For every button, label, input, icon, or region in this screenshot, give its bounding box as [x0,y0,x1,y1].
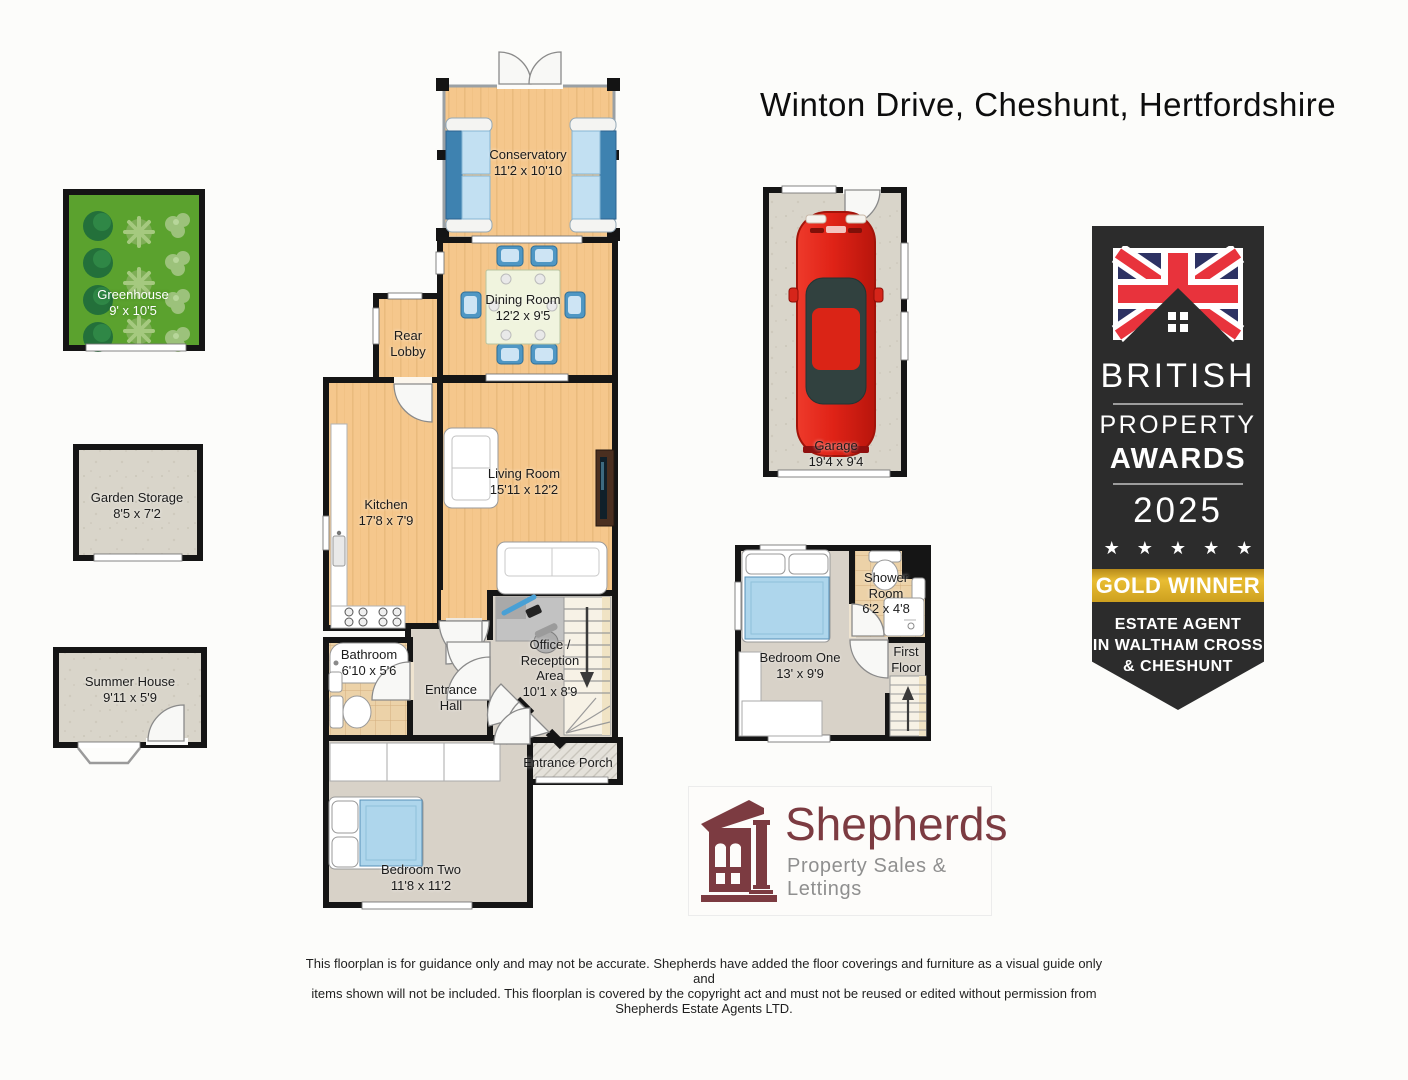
room-label-entrance-hall: Entrance Hall [416,682,486,713]
bed-icon [329,797,423,869]
shepherds-building-icon [699,797,779,903]
greenhouse-block [66,192,202,352]
room-label-first-floor: First Floor [884,644,928,675]
badge-stars-icon: ★ ★ ★ ★ ★ [1092,538,1264,559]
room-label-office: Office / Reception Area10'1 x 8'9 [510,637,590,699]
room-label-garden-storage: Garden Storage8'5 x 7'2 [77,490,197,521]
room-label-kitchen: Kitchen17'8 x 7'9 [341,497,431,528]
room-label-bathroom: Bathroom6'10 x 5'6 [327,647,411,678]
union-jack-house-icon [1111,246,1245,342]
floorplan-page: Conservatory11'2 x 10'10 Dining Room12'2… [0,0,1408,1080]
badge-property: PROPERTY [1092,411,1264,440]
wardrobe-icon [330,743,500,781]
tv-icon [596,450,614,526]
toilet-icon [330,696,371,728]
disclaimer-line-2: items shown will not be included. This f… [304,986,1104,1001]
badge-british: BRITISH [1092,357,1264,396]
badge-year: 2025 [1092,491,1264,531]
badge-subtitle-3: & CHESHUNT [1092,656,1264,677]
room-label-bedroom-two: Bedroom Two11'8 x 11'2 [351,862,491,893]
window-icon [78,742,140,749]
room-label-rear-lobby: Rear Lobby [384,328,432,359]
bed-icon [742,550,830,642]
badge-awards: AWARDS [1092,443,1264,476]
room-label-garage: Garage19'4 x 9'4 [786,438,886,469]
room-label-entrance-porch: Entrance Porch [508,755,628,771]
room-label-dining-room: Dining Room12'2 x 9'5 [468,292,578,323]
room-label-living-room: Living Room15'11 x 12'2 [464,466,584,497]
car-icon [789,212,883,456]
shepherds-logo: Shepherds Property Sales & Lettings [688,786,992,916]
badge-subtitle-1: ESTATE AGENT [1092,614,1264,635]
disclaimer-line-1: This floorplan is for guidance only and … [304,956,1104,986]
room-label-bedroom-one: Bedroom One13' x 9'9 [735,650,865,681]
disclaimer-text: This floorplan is for guidance only and … [304,956,1104,1016]
window-icon [86,344,186,351]
page-title: Winton Drive, Cheshunt, Hertfordshire [760,86,1336,124]
disclaimer-line-3: Shepherds Estate Agents LTD. [304,1001,1104,1016]
sofa-icon [497,542,607,594]
british-property-awards-badge: BRITISH PROPERTY AWARDS 2025 ★ ★ ★ ★ ★ G… [1092,226,1264,710]
badge-gold-winner: GOLD WINNER [1092,569,1264,602]
room-label-greenhouse: Greenhouse9' x 10'5 [78,287,188,318]
room-label-shower-room: Shower Room6'2 x 4'8 [856,570,916,617]
garage-block [766,186,908,477]
summer-house-block [56,650,204,763]
stairs [890,676,926,736]
room-label-summer-house: Summer House9'11 x 5'9 [70,674,190,705]
badge-divider [1113,403,1243,405]
door-arc [499,52,531,84]
room-label-conservatory: Conservatory11'2 x 10'10 [463,147,593,178]
window-icon [94,554,182,561]
logo-name: Shepherds [785,797,1008,851]
logo-tagline: Property Sales & Lettings [787,855,991,901]
badge-subtitle-2: IN WALTHAM CROSS [1092,635,1264,656]
badge-divider [1113,483,1243,485]
door-arc [529,52,561,84]
bay-window-icon [78,748,140,763]
